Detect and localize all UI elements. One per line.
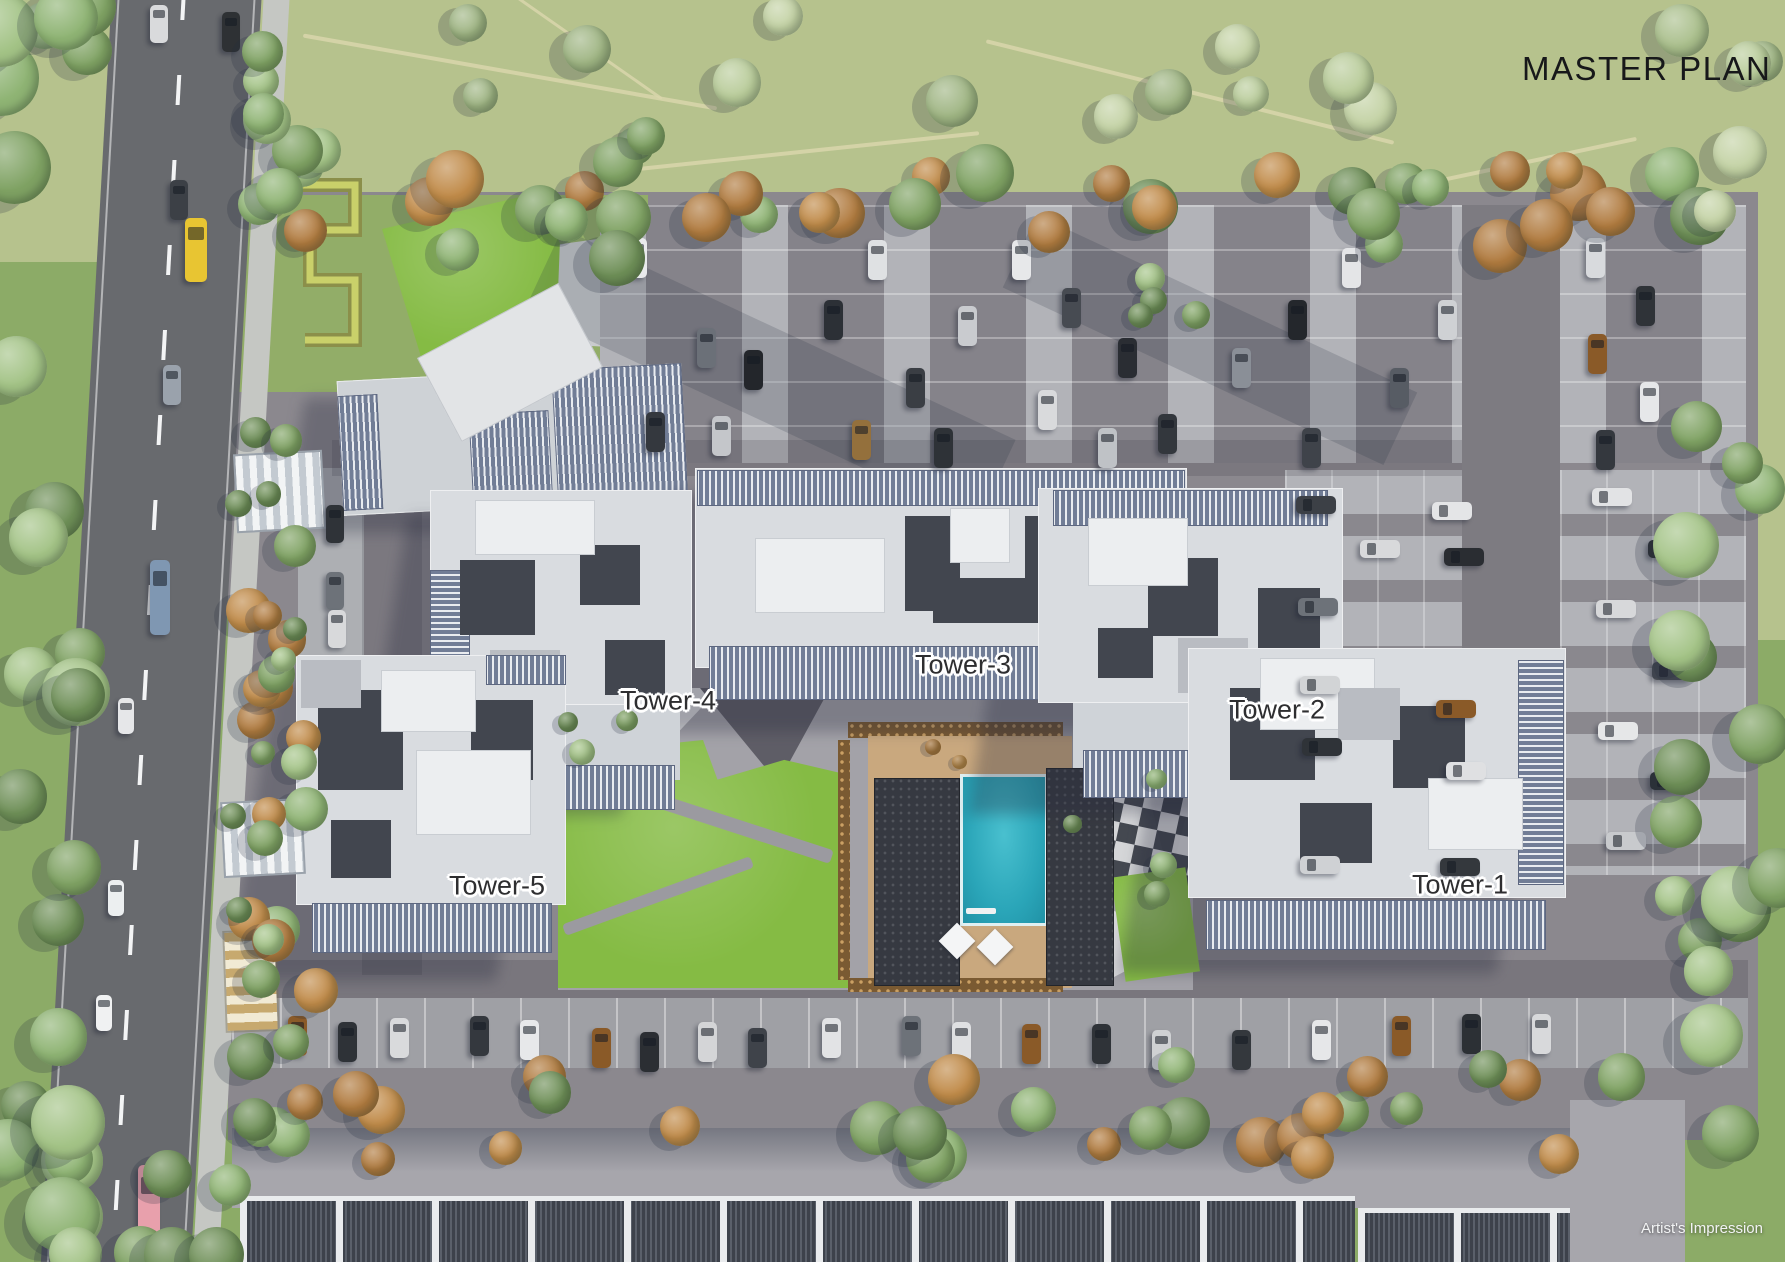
tree <box>1586 187 1636 237</box>
tree <box>1028 211 1070 253</box>
tree <box>1729 704 1785 765</box>
tree <box>32 894 84 946</box>
tree <box>270 424 303 457</box>
tree <box>426 150 484 208</box>
tree <box>226 897 252 923</box>
tree <box>274 525 316 567</box>
tree <box>1347 1056 1388 1097</box>
tree <box>529 1071 571 1113</box>
tree <box>256 168 303 215</box>
tree <box>925 739 941 755</box>
tree <box>283 617 307 641</box>
tree <box>1233 76 1269 112</box>
tree <box>1702 1105 1759 1162</box>
tree <box>1684 946 1734 996</box>
tree <box>449 4 487 42</box>
tree <box>489 1131 523 1165</box>
tree <box>189 1227 244 1262</box>
tree <box>220 803 247 830</box>
tree <box>273 1024 309 1060</box>
tree <box>893 1106 947 1160</box>
tree <box>1011 1087 1056 1132</box>
tree <box>563 25 612 74</box>
tree <box>889 178 941 230</box>
tree <box>928 1054 979 1105</box>
tower-4-label: Tower-4 <box>620 686 716 717</box>
tree <box>1323 52 1375 104</box>
tree <box>333 1071 379 1117</box>
tree <box>956 144 1014 202</box>
tree <box>1598 1053 1646 1101</box>
tree <box>1094 94 1139 139</box>
tree <box>0 769 47 824</box>
tree <box>1254 152 1300 198</box>
tree <box>47 840 102 895</box>
tree <box>1490 151 1530 191</box>
tree <box>1520 199 1573 252</box>
tree <box>1469 1050 1507 1088</box>
tree <box>926 75 978 127</box>
tree <box>225 490 252 517</box>
tree <box>284 787 328 831</box>
tree <box>243 93 285 135</box>
tree <box>209 1164 251 1206</box>
tree <box>1150 852 1177 879</box>
tree <box>1158 1047 1194 1083</box>
tree <box>1539 1134 1579 1174</box>
tree <box>1347 188 1400 241</box>
tree <box>242 31 283 72</box>
tree <box>284 209 327 252</box>
tree <box>9 508 68 567</box>
tree <box>1144 881 1170 907</box>
tree <box>569 739 595 765</box>
tree <box>545 198 588 241</box>
tree <box>281 744 318 781</box>
tower-1-label: Tower-1 <box>1412 870 1508 901</box>
master-plan-render: MASTER PLAN Tower-1 Tower-2 Tower-3 Towe… <box>0 0 1785 1262</box>
tree <box>1093 165 1130 202</box>
tree <box>1063 815 1082 834</box>
tree <box>1546 152 1583 189</box>
tree <box>763 0 803 36</box>
tree <box>1722 442 1764 484</box>
tree <box>1412 169 1448 205</box>
tree <box>1654 739 1710 795</box>
trees-layer <box>0 0 1785 1262</box>
tree <box>242 960 280 998</box>
tree <box>952 755 967 770</box>
tree <box>253 924 284 955</box>
tree <box>682 193 731 242</box>
tree <box>1650 796 1702 848</box>
tree <box>1713 126 1766 179</box>
artist-impression-credit: Artist's Impression <box>1641 1220 1763 1237</box>
tree <box>31 1085 106 1160</box>
tower-5-label: Tower-5 <box>449 871 545 902</box>
tower-3-label: Tower-3 <box>915 650 1011 681</box>
tree <box>589 230 645 286</box>
tree <box>51 668 105 722</box>
tree <box>247 820 283 856</box>
tree <box>660 1106 700 1146</box>
tree <box>1146 769 1166 789</box>
tree <box>436 228 479 271</box>
tree <box>1291 1136 1334 1179</box>
tree <box>627 117 665 155</box>
tree <box>1653 512 1719 578</box>
tree <box>1671 401 1723 453</box>
tree <box>1145 69 1191 115</box>
tree <box>0 336 47 398</box>
tree <box>1390 1092 1423 1125</box>
tree <box>256 481 281 506</box>
tree <box>30 1008 88 1066</box>
tree <box>1215 24 1260 69</box>
tree <box>0 131 51 204</box>
page-title: MASTER PLAN <box>1522 50 1771 88</box>
tree <box>361 1142 395 1176</box>
tree <box>1128 303 1153 328</box>
tree <box>287 1084 323 1120</box>
tree <box>1694 190 1736 232</box>
tower-2-label: Tower-2 <box>1229 695 1325 726</box>
tree <box>1680 1004 1743 1067</box>
tree <box>1129 1106 1172 1149</box>
tree <box>463 78 498 113</box>
tree <box>294 968 339 1013</box>
tree <box>271 647 296 672</box>
tree <box>1182 301 1210 329</box>
tree <box>558 712 578 732</box>
tree <box>713 58 762 107</box>
tree <box>1087 1127 1121 1161</box>
tree <box>143 1150 191 1198</box>
